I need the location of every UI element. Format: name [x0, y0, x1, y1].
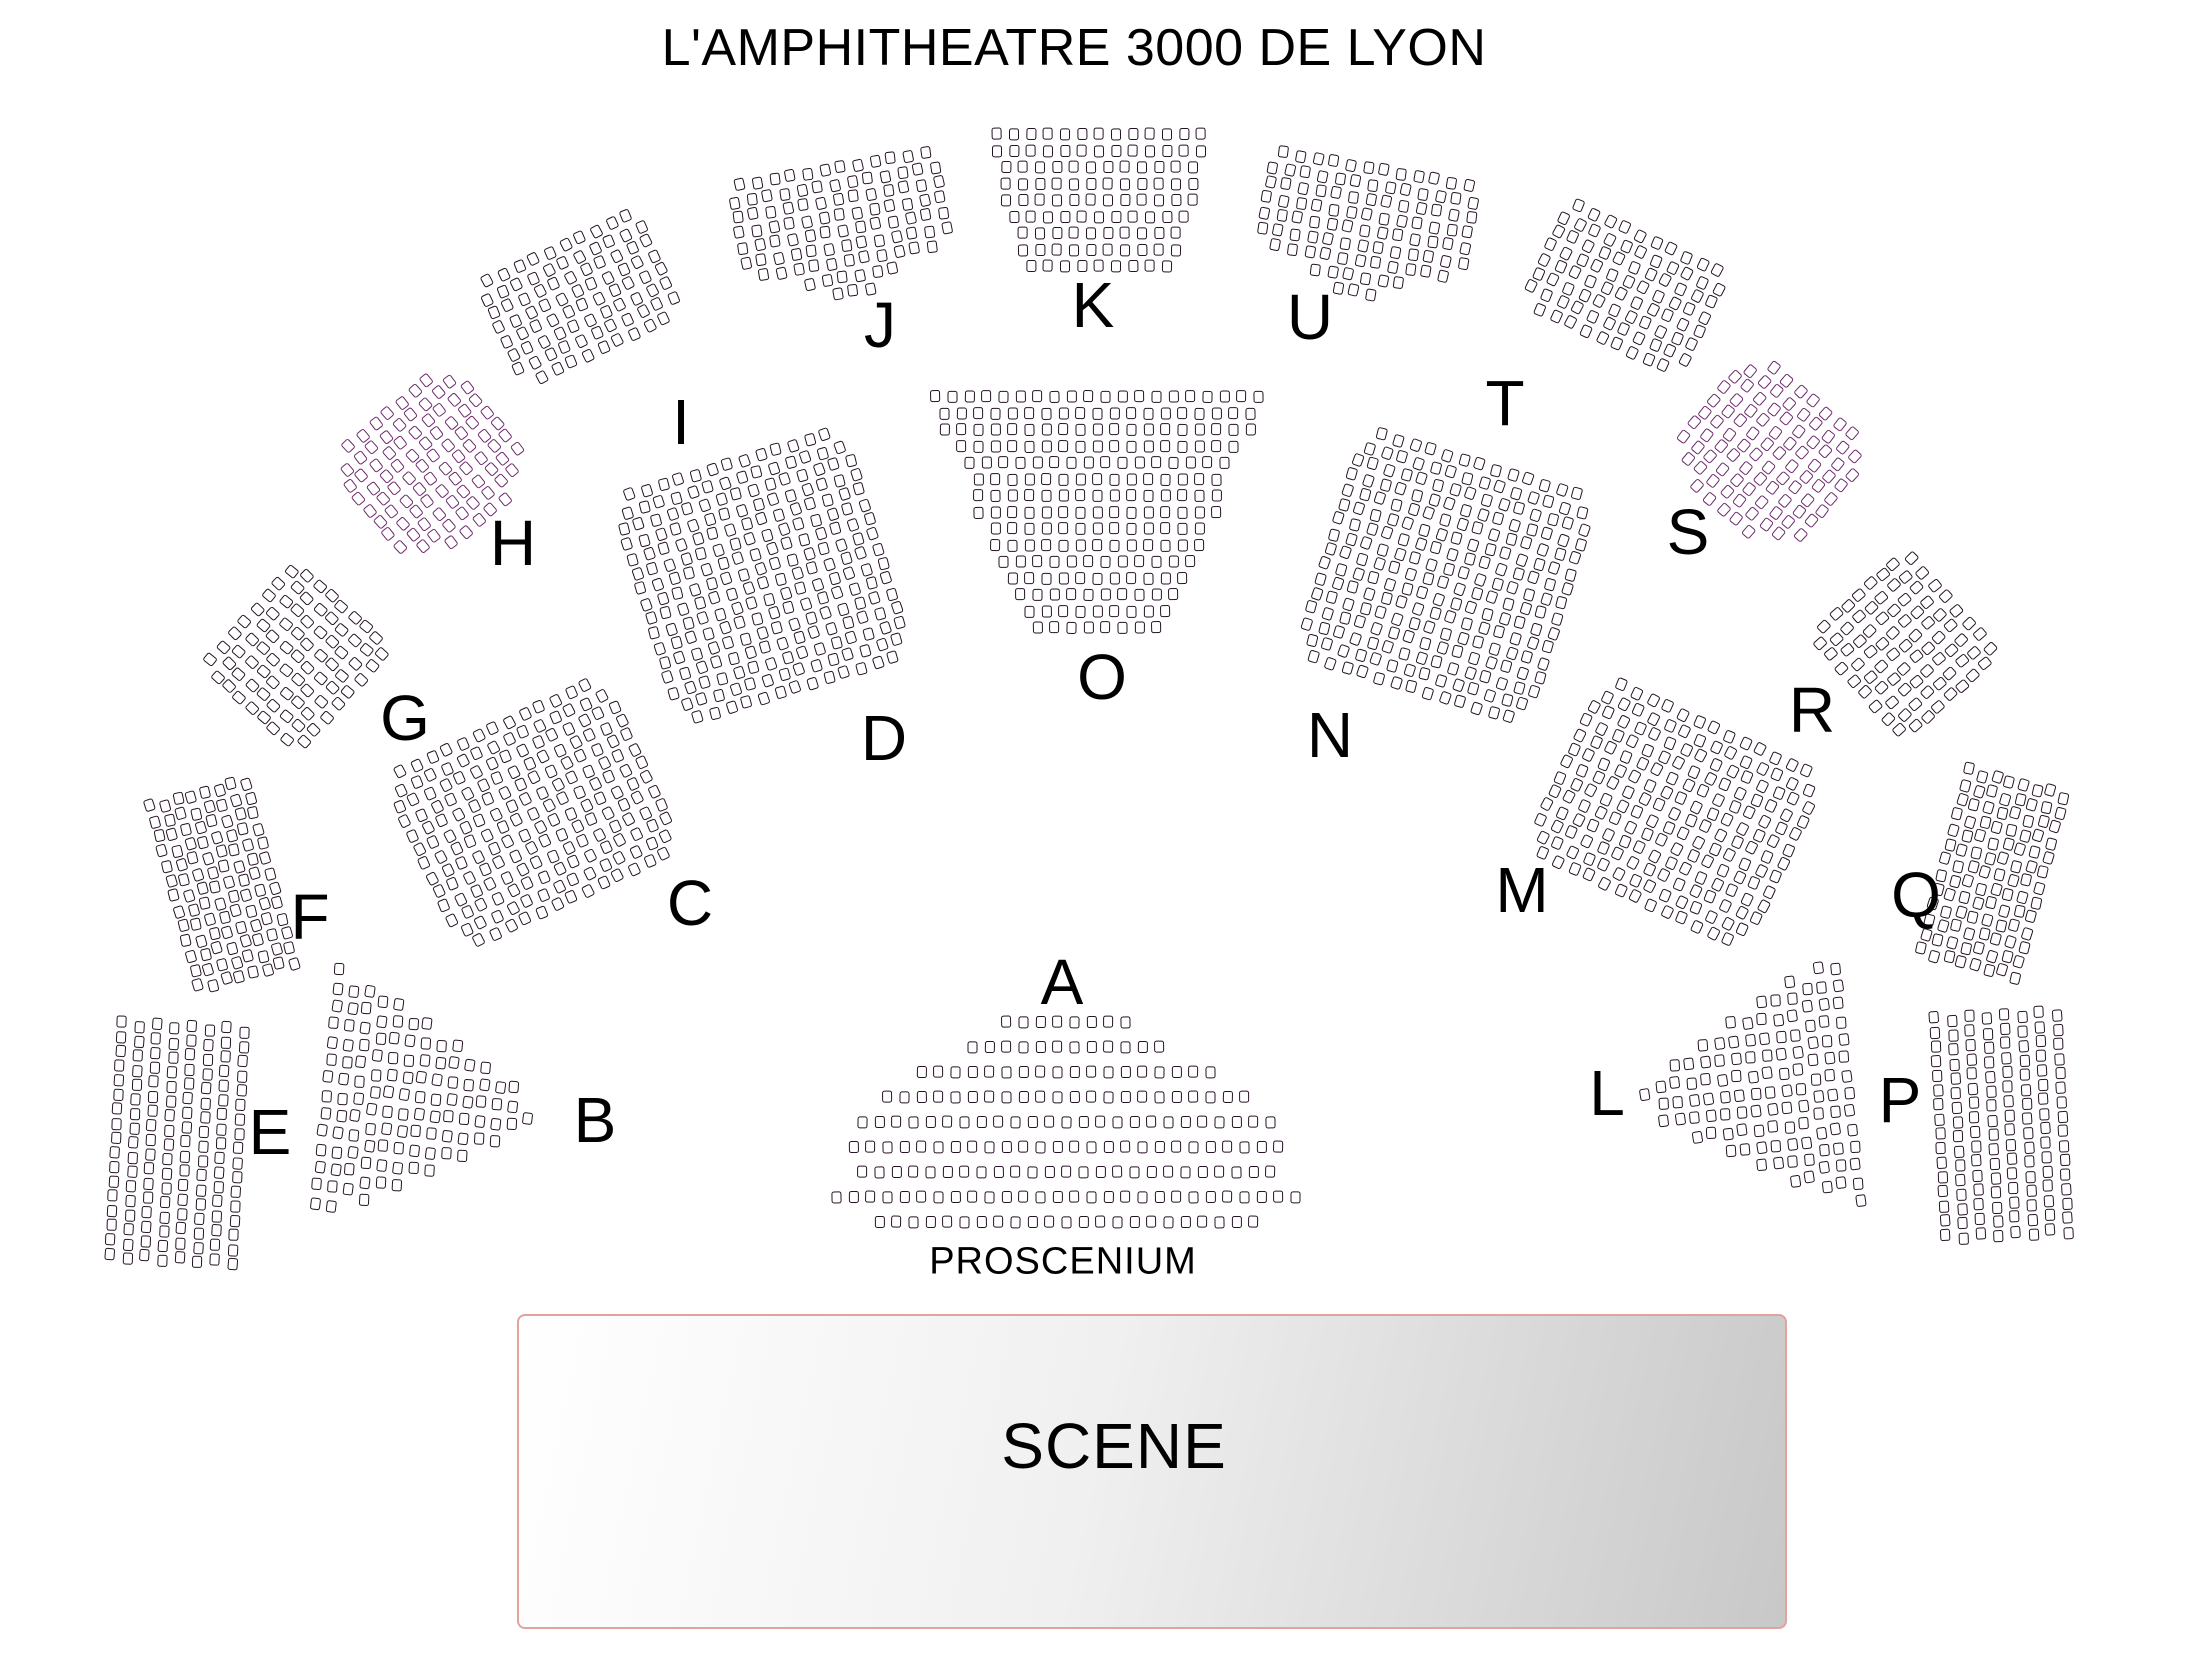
seat — [1647, 726, 1661, 741]
seat — [1533, 302, 1547, 317]
seat — [1109, 423, 1119, 435]
seat-row — [992, 145, 1206, 157]
seat — [1645, 813, 1659, 828]
seat — [563, 270, 577, 285]
seat — [1026, 210, 1036, 222]
seat — [2063, 1227, 2074, 1240]
seat — [1391, 612, 1405, 627]
seat — [1564, 314, 1578, 329]
seat — [159, 799, 172, 813]
seat — [383, 1085, 395, 1098]
seat — [1749, 911, 1763, 926]
seat — [1700, 1055, 1712, 1068]
seat — [891, 229, 903, 243]
seat — [1066, 622, 1076, 634]
seat — [667, 686, 680, 700]
seat — [1299, 165, 1311, 178]
seat — [148, 1090, 158, 1102]
seat — [515, 326, 529, 341]
seat — [252, 933, 265, 947]
seat — [1163, 1166, 1173, 1178]
seat — [2014, 904, 2026, 918]
seat — [1590, 735, 1604, 750]
seat — [1534, 605, 1547, 619]
seat — [1990, 820, 2003, 834]
seat — [1366, 522, 1379, 536]
seat — [216, 957, 229, 971]
seat — [619, 763, 633, 778]
section-block-F[interactable] — [144, 773, 300, 992]
seat — [1940, 905, 1953, 919]
section-label-B: B — [574, 1088, 617, 1152]
seat — [1435, 189, 1447, 203]
seat — [1427, 171, 1439, 185]
seat — [1394, 481, 1407, 496]
seat — [817, 591, 830, 605]
seat — [429, 1110, 441, 1123]
seat — [153, 829, 165, 843]
seat — [645, 561, 658, 575]
seat — [1706, 393, 1721, 409]
seat — [2020, 1084, 2031, 1097]
seat — [195, 1184, 206, 1197]
section-block-U[interactable] — [1248, 144, 1482, 315]
seat — [1035, 1191, 1045, 1203]
seat — [1807, 1053, 1818, 1066]
seat — [1499, 611, 1512, 626]
seat — [1024, 605, 1034, 617]
seat — [1625, 733, 1639, 748]
seat — [745, 595, 758, 609]
seat — [1835, 1176, 1846, 1189]
seat — [667, 291, 681, 306]
seat — [973, 473, 983, 485]
seat — [798, 449, 811, 464]
seat — [2002, 837, 2015, 851]
seat — [562, 840, 576, 855]
seat — [527, 770, 541, 785]
seat — [423, 786, 437, 801]
seat — [1698, 405, 1713, 421]
seat — [1460, 503, 1473, 517]
seat — [1076, 210, 1086, 222]
seat — [486, 740, 500, 755]
seat — [1508, 518, 1521, 533]
seat — [1273, 1140, 1283, 1152]
seat — [1143, 423, 1153, 435]
seat — [747, 192, 758, 205]
seat — [425, 871, 439, 886]
seat — [440, 761, 454, 776]
seat — [1603, 214, 1617, 229]
seat — [1716, 501, 1731, 517]
seat — [1738, 460, 1753, 476]
seat — [1397, 533, 1410, 547]
seat — [1377, 273, 1389, 287]
seat — [1126, 424, 1136, 436]
seat — [1345, 532, 1358, 546]
seat — [682, 616, 695, 630]
seat — [168, 1051, 178, 1063]
seat — [1547, 626, 1561, 641]
seat — [1084, 456, 1094, 468]
seat — [348, 985, 359, 998]
seat — [1129, 1116, 1139, 1128]
seat — [216, 1137, 226, 1149]
seat — [461, 904, 475, 919]
seat — [1707, 720, 1721, 735]
seat — [422, 767, 436, 782]
seat — [1120, 1140, 1130, 1152]
section-block-R[interactable] — [1806, 545, 2005, 745]
section-label-J: J — [864, 293, 896, 357]
seat — [1101, 588, 1111, 600]
seat — [1602, 316, 1616, 331]
seat — [1984, 1071, 1995, 1084]
seat — [1654, 832, 1668, 847]
seat — [507, 1118, 518, 1131]
seat — [816, 446, 829, 460]
seat — [950, 1091, 960, 1103]
seat — [1537, 252, 1551, 267]
seat — [408, 1018, 419, 1031]
seat — [1052, 161, 1062, 173]
seat — [2057, 792, 2069, 806]
seat — [1597, 756, 1611, 771]
seat — [1100, 621, 1110, 633]
seat — [1401, 582, 1414, 596]
seat — [462, 870, 476, 885]
seat — [1134, 555, 1144, 567]
seat — [1616, 798, 1630, 813]
seat — [1500, 659, 1513, 673]
seat — [1686, 1077, 1697, 1090]
seat — [229, 1214, 240, 1227]
seat — [968, 1066, 978, 1078]
seat — [850, 467, 863, 482]
seat — [1639, 1088, 1651, 1101]
seat — [1126, 407, 1136, 419]
seat — [247, 965, 259, 979]
seat — [1603, 740, 1617, 755]
seat — [810, 659, 823, 673]
seat — [365, 1123, 376, 1136]
seat — [1487, 528, 1500, 543]
seat — [766, 491, 779, 506]
seat — [555, 291, 569, 306]
seat — [1228, 424, 1238, 436]
section-block-E[interactable] — [104, 1016, 249, 1267]
seat — [1143, 490, 1153, 502]
seat — [1035, 244, 1045, 256]
seat — [1646, 302, 1660, 317]
seat — [827, 653, 840, 667]
seat — [464, 415, 479, 431]
section-label-D: D — [861, 706, 907, 770]
seat — [276, 912, 288, 926]
seat — [1661, 698, 1675, 713]
seat — [1757, 814, 1771, 829]
seat — [993, 1116, 1003, 1128]
seat — [268, 881, 281, 896]
seat — [1363, 587, 1376, 602]
seat — [316, 1123, 328, 1136]
seat — [1331, 576, 1344, 591]
seat — [326, 1053, 337, 1066]
seat — [1228, 440, 1238, 452]
seat — [333, 599, 349, 614]
seat-row — [973, 506, 1221, 518]
seat — [227, 1258, 238, 1271]
seat — [2020, 873, 2032, 887]
seat — [1988, 1128, 1998, 1140]
seat — [443, 792, 457, 807]
seat — [162, 1152, 172, 1164]
section-block-M[interactable] — [1521, 671, 1829, 955]
seat — [1284, 163, 1296, 177]
seat — [331, 1146, 342, 1159]
seat — [772, 508, 785, 522]
seat — [1287, 243, 1298, 256]
seat — [502, 715, 516, 730]
seat — [1985, 896, 1997, 910]
seat — [1327, 154, 1339, 167]
seat — [1214, 1166, 1224, 1178]
seat — [364, 658, 380, 673]
seat — [640, 483, 653, 497]
seat — [528, 355, 542, 370]
seat — [419, 1054, 430, 1067]
seat — [2054, 806, 2067, 820]
seat — [397, 813, 411, 828]
seat — [1730, 472, 1745, 488]
seat — [1441, 449, 1454, 464]
seat — [650, 513, 663, 527]
seat — [1512, 567, 1525, 581]
seat — [602, 233, 616, 248]
seat — [2032, 828, 2045, 843]
seat — [288, 957, 301, 971]
section-block-O[interactable] — [931, 391, 1264, 634]
seat — [114, 1059, 125, 1071]
seat — [2007, 1152, 2018, 1165]
seat — [1112, 1216, 1122, 1228]
seat — [1266, 161, 1278, 175]
seat — [1152, 588, 1162, 600]
seat — [1513, 681, 1526, 695]
seat — [1377, 226, 1389, 240]
seat — [990, 407, 1000, 419]
seat — [476, 777, 490, 792]
seat — [415, 1070, 427, 1083]
seat — [594, 688, 608, 703]
seat — [1933, 1084, 1944, 1097]
seat — [657, 541, 670, 555]
seat — [219, 1064, 230, 1077]
seat — [1010, 1166, 1020, 1178]
seat — [443, 828, 457, 843]
seat — [478, 862, 492, 877]
seat — [1052, 1041, 1062, 1053]
seat — [1846, 1124, 1857, 1137]
seat — [1897, 592, 1913, 607]
seat — [1468, 651, 1481, 665]
seat — [439, 778, 453, 793]
section-label-S: S — [1667, 500, 1710, 564]
seat — [447, 1076, 458, 1089]
seat — [1990, 1172, 2001, 1185]
seat — [1935, 1127, 1946, 1140]
seat — [998, 556, 1008, 568]
seat — [1194, 490, 1204, 502]
seat — [245, 904, 258, 918]
seat — [532, 699, 546, 714]
seat — [1461, 617, 1474, 631]
seat — [1449, 483, 1462, 497]
seat — [1470, 701, 1483, 716]
seat — [405, 526, 420, 542]
seat — [334, 963, 345, 976]
seat — [840, 647, 853, 662]
seat — [659, 811, 673, 826]
seat — [468, 798, 482, 813]
seat — [1066, 588, 1076, 600]
seat — [415, 538, 430, 554]
seat — [985, 1041, 995, 1053]
seat — [1495, 562, 1509, 577]
seat — [494, 451, 509, 467]
seat — [152, 1017, 163, 1030]
seat — [311, 1177, 322, 1190]
seat — [776, 636, 789, 651]
seat — [1571, 198, 1585, 213]
seat — [1570, 777, 1584, 792]
seat — [1069, 1041, 1079, 1053]
seat — [1170, 244, 1180, 256]
seat — [200, 948, 212, 962]
section-block-J[interactable] — [726, 144, 960, 315]
seat — [1188, 177, 1198, 189]
seat — [1584, 782, 1598, 797]
seat — [1144, 127, 1154, 139]
section-block-A[interactable] — [832, 1016, 1301, 1228]
seat — [299, 660, 315, 676]
seat — [319, 710, 335, 725]
seat — [524, 304, 538, 319]
seat — [639, 597, 653, 612]
seat — [1995, 962, 2008, 976]
seat — [1427, 235, 1438, 248]
seat — [1734, 1089, 1745, 1102]
section-block-G[interactable] — [198, 557, 397, 757]
seat — [193, 1241, 204, 1254]
seat — [1951, 1102, 1962, 1115]
seat — [656, 310, 670, 325]
seat — [1779, 807, 1793, 822]
seat — [421, 412, 436, 428]
seat — [1740, 770, 1754, 785]
seat — [230, 644, 246, 659]
seat — [1109, 572, 1119, 584]
seat — [374, 647, 390, 662]
section-block-L[interactable] — [1628, 952, 1864, 1219]
seat — [575, 297, 589, 312]
seat — [480, 1061, 491, 1074]
seat — [1155, 1141, 1165, 1153]
section-block-T[interactable] — [1518, 195, 1732, 380]
seat — [583, 848, 597, 863]
section-block-I[interactable] — [473, 205, 687, 390]
seat — [412, 841, 426, 856]
seat — [1138, 1141, 1148, 1153]
seat — [740, 256, 752, 270]
seat — [526, 271, 540, 286]
seat — [2022, 815, 2034, 829]
seat — [1464, 486, 1478, 501]
seat — [1595, 721, 1609, 736]
section-block-N[interactable] — [1292, 423, 1601, 729]
seat — [1761, 459, 1776, 475]
seat — [805, 561, 818, 575]
seat — [2002, 887, 2014, 901]
seat — [1169, 555, 1179, 567]
seat — [791, 566, 804, 581]
seat — [391, 1179, 402, 1192]
seat — [1171, 1191, 1181, 1203]
seat — [1979, 815, 1991, 829]
seat — [1731, 835, 1745, 850]
seat — [1565, 844, 1579, 859]
seat — [1787, 992, 1798, 1005]
seat — [1920, 594, 1936, 609]
seat — [927, 240, 938, 253]
seat — [200, 1082, 211, 1095]
seat — [1356, 664, 1369, 679]
seat — [1366, 456, 1379, 470]
section-block-D[interactable] — [608, 423, 917, 729]
seat — [1561, 582, 1574, 597]
seat — [1796, 814, 1810, 829]
seat — [589, 224, 603, 239]
seat — [403, 1055, 414, 1068]
seat — [245, 791, 258, 805]
seat-row — [1001, 178, 1198, 190]
section-block-B[interactable] — [310, 964, 546, 1231]
seat — [813, 462, 827, 477]
seat — [347, 1002, 359, 1015]
seat — [1001, 1066, 1011, 1078]
seat — [1265, 1116, 1275, 1128]
seat — [1041, 424, 1051, 436]
seat — [377, 995, 388, 1008]
seat — [509, 276, 523, 291]
section-block-P[interactable] — [1929, 1005, 2073, 1241]
seat — [378, 1139, 389, 1152]
seat — [1950, 1086, 1961, 1098]
seat — [1964, 1010, 1974, 1022]
seat — [408, 504, 423, 520]
seat — [990, 423, 1000, 435]
seat — [107, 1189, 117, 1201]
seat — [865, 188, 877, 202]
seat — [1425, 557, 1438, 572]
seat — [1813, 1090, 1824, 1103]
seat — [1102, 194, 1112, 206]
seat — [1978, 865, 1991, 880]
seat — [1561, 516, 1574, 530]
section-block-K[interactable] — [992, 128, 1206, 272]
seat — [1194, 423, 1204, 435]
